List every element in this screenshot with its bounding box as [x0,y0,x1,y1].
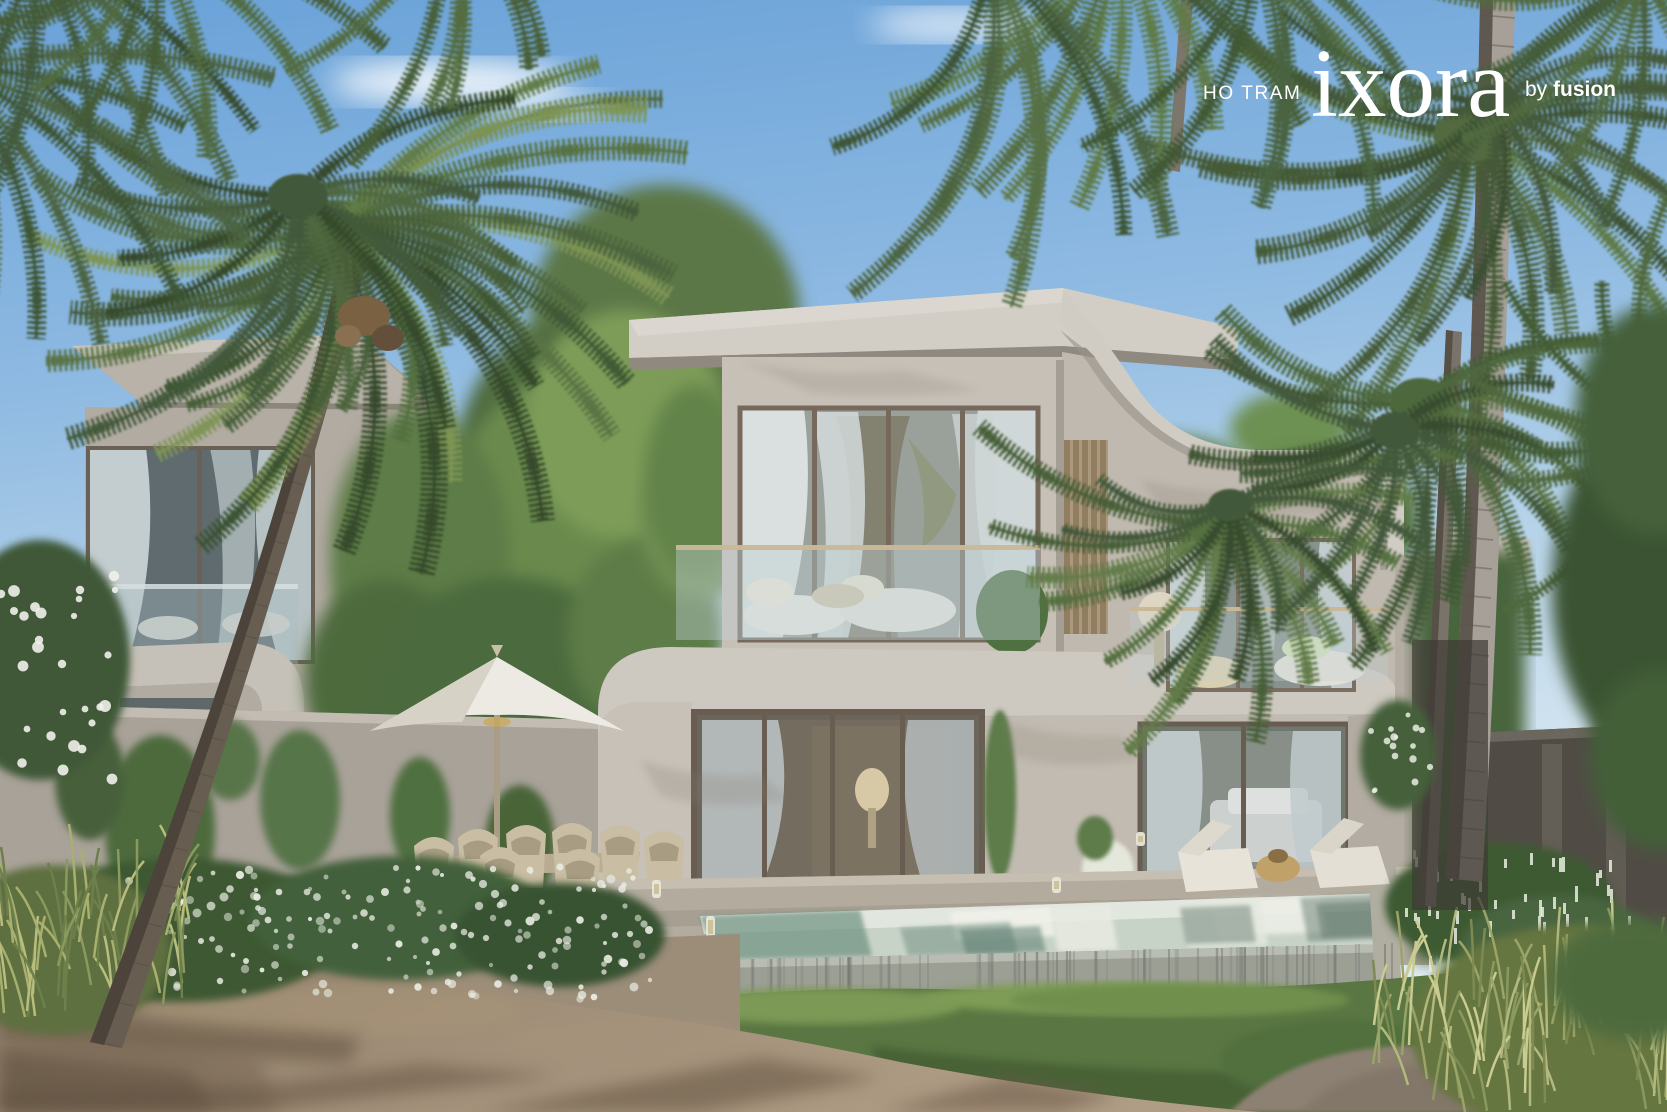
svg-text:by fusion: by fusion [1525,78,1616,101]
svg-text:ixora: ixora [1311,30,1510,137]
svg-text:HO TRAM: HO TRAM [1203,83,1301,104]
